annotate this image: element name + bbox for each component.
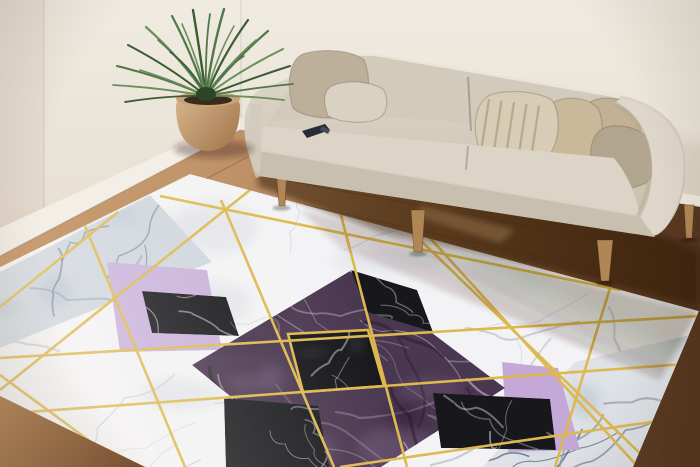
- living-room-scene: [0, 0, 700, 467]
- photo-vignette: [0, 0, 700, 467]
- scene-canvas: [0, 0, 700, 467]
- living-room-photo: [0, 0, 700, 467]
